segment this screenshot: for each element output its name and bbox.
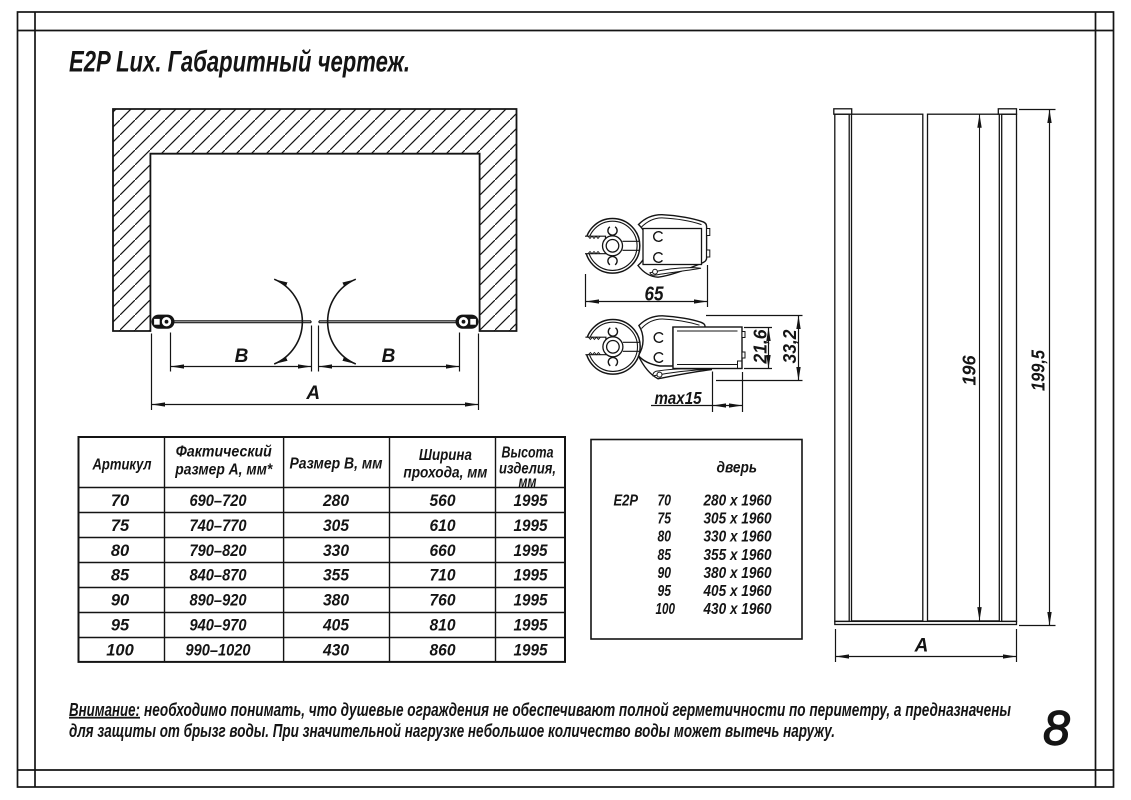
svg-text:1995: 1995 [514, 542, 549, 560]
svg-text:Высота: Высота [502, 444, 554, 461]
svg-text:80: 80 [658, 529, 672, 546]
svg-text:E2P Lux. Габаритный чертеж.: E2P Lux. Габаритный чертеж. [69, 46, 410, 79]
svg-text:мм: мм [519, 474, 537, 491]
svg-text:610: 610 [430, 517, 457, 535]
svg-text:8: 8 [1043, 703, 1070, 756]
svg-text:В: В [235, 346, 249, 367]
svg-text:740–770: 740–770 [190, 517, 248, 535]
svg-text:95: 95 [111, 616, 130, 634]
svg-text:690–720: 690–720 [190, 492, 248, 510]
svg-text:дверь: дверь [717, 460, 758, 477]
svg-text:Артикул: Артикул [92, 456, 152, 473]
svg-text:1995: 1995 [514, 641, 549, 659]
svg-text:199,5: 199,5 [1028, 349, 1049, 391]
svg-text:1995: 1995 [514, 616, 549, 634]
svg-text:85: 85 [658, 547, 672, 564]
svg-text:100: 100 [106, 641, 134, 659]
svg-text:33,2: 33,2 [780, 330, 800, 364]
svg-text:80: 80 [111, 542, 130, 560]
svg-text:280: 280 [322, 492, 350, 510]
svg-text:75: 75 [658, 511, 672, 528]
svg-text:90: 90 [658, 565, 672, 582]
svg-text:В: В [382, 346, 396, 367]
svg-text:860: 860 [430, 641, 457, 659]
svg-text:95: 95 [658, 583, 672, 600]
svg-text:1995: 1995 [514, 492, 549, 510]
svg-text:90: 90 [111, 592, 130, 610]
svg-text:Фактический: Фактический [176, 444, 272, 461]
svg-text:max15: max15 [655, 388, 702, 408]
svg-text:380 x 1960: 380 x 1960 [704, 565, 772, 582]
svg-text:430 x 1960: 430 x 1960 [703, 601, 772, 618]
svg-text:890–920: 890–920 [190, 592, 248, 610]
svg-text:380: 380 [323, 592, 350, 610]
svg-text:405 x 1960: 405 x 1960 [703, 583, 772, 600]
svg-text:305 x 1960: 305 x 1960 [704, 511, 772, 528]
svg-text:280 x 1960: 280 x 1960 [703, 493, 772, 510]
svg-text:Ширина: Ширина [419, 447, 472, 464]
svg-text:560: 560 [430, 492, 457, 510]
svg-text:21,6: 21,6 [751, 329, 771, 365]
svg-text:прохода, мм: прохода, мм [403, 465, 487, 482]
svg-text:355: 355 [323, 567, 350, 585]
svg-text:1995: 1995 [514, 567, 549, 585]
svg-text:330: 330 [323, 542, 350, 560]
svg-text:305: 305 [323, 517, 350, 535]
svg-text:840–870: 840–870 [190, 567, 248, 585]
svg-text:70: 70 [111, 492, 130, 510]
svg-text:75: 75 [111, 517, 130, 535]
svg-text:Внимание:: Внимание: [69, 700, 140, 720]
svg-text:940–970: 940–970 [190, 616, 248, 634]
svg-text:1995: 1995 [514, 517, 549, 535]
svg-text:65: 65 [645, 284, 665, 306]
svg-text:85: 85 [111, 567, 130, 585]
svg-text:710: 710 [430, 567, 457, 585]
svg-text:1995: 1995 [514, 592, 549, 610]
svg-text:196: 196 [959, 355, 980, 386]
svg-text:990–1020: 990–1020 [186, 641, 252, 659]
svg-text:810: 810 [430, 616, 457, 634]
svg-text:660: 660 [430, 542, 457, 560]
svg-text:760: 760 [430, 592, 457, 610]
svg-text:необходимо понимать, что душев: необходимо понимать, что душевые огражде… [144, 700, 1011, 720]
svg-text:100: 100 [656, 601, 676, 618]
svg-text:А: А [305, 383, 320, 404]
svg-text:Размер В, мм: Размер В, мм [290, 455, 383, 472]
svg-text:430: 430 [322, 641, 350, 659]
svg-text:для защиты от брызг воды. При: для защиты от брызг воды. При значительн… [69, 721, 835, 741]
svg-text:330 x 1960: 330 x 1960 [704, 529, 772, 546]
svg-text:790–820: 790–820 [190, 542, 248, 560]
svg-text:355 x 1960: 355 x 1960 [704, 547, 772, 564]
svg-text:А: А [914, 635, 929, 656]
svg-text:E2P: E2P [614, 493, 639, 510]
svg-text:405: 405 [322, 616, 350, 634]
svg-text:70: 70 [658, 493, 672, 510]
svg-text:размер А, мм*: размер А, мм* [174, 462, 273, 479]
